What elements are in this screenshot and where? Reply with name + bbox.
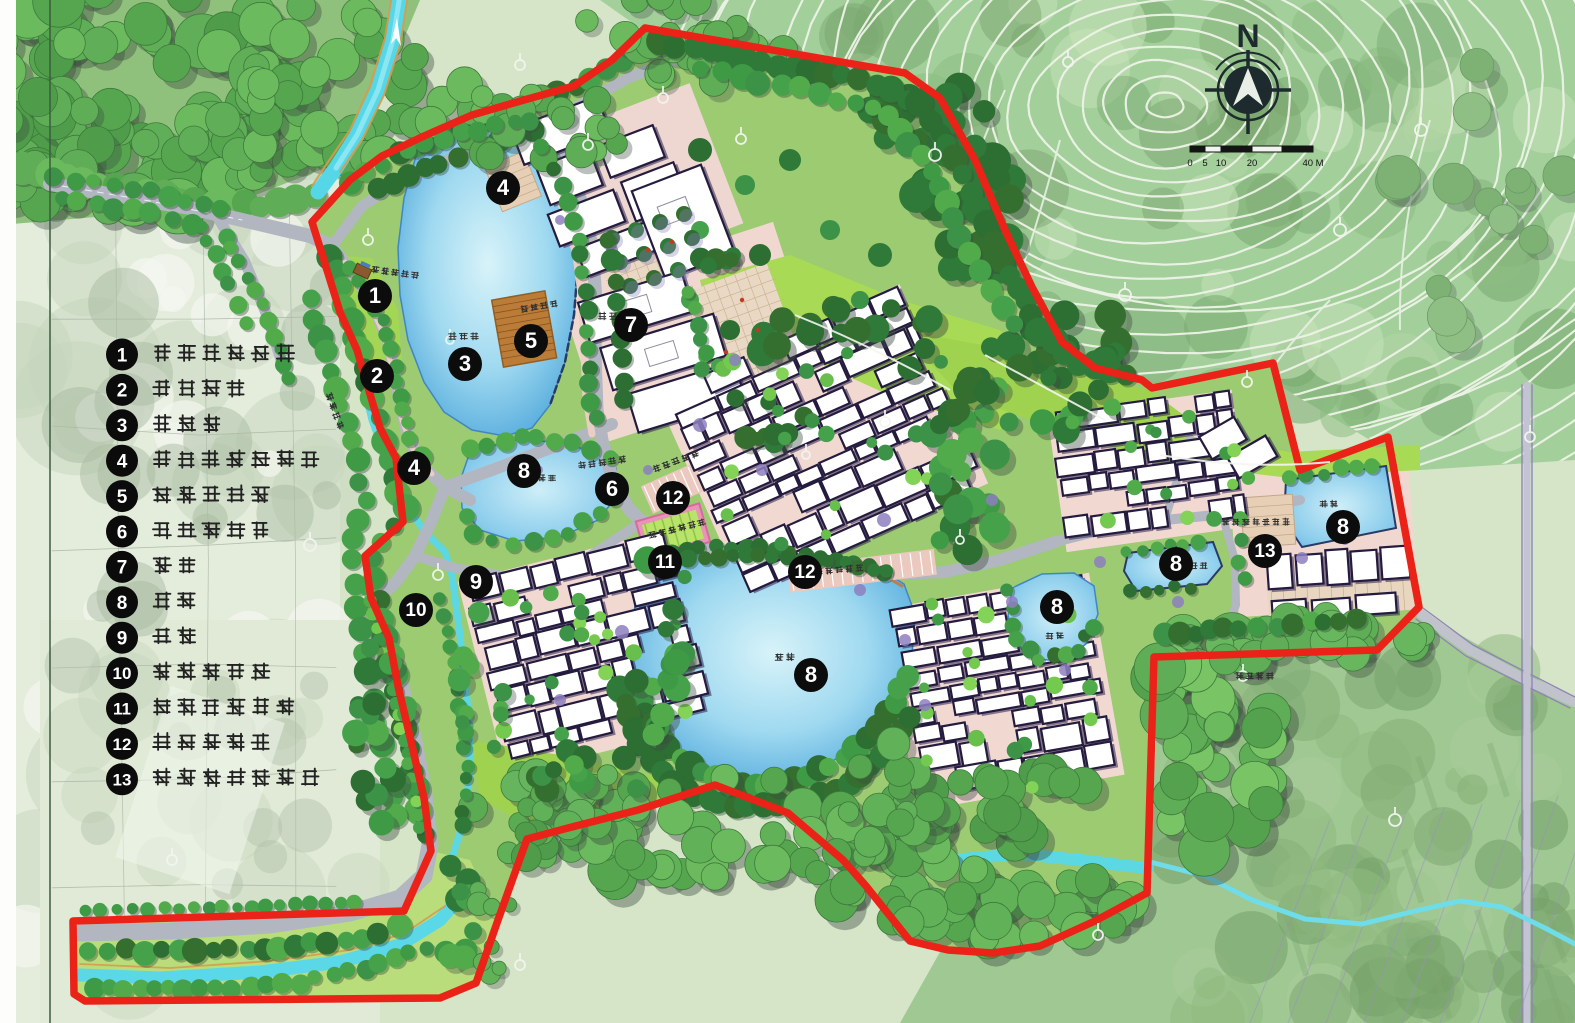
svg-text:4: 4 — [117, 452, 128, 473]
svg-text:3: 3 — [117, 416, 128, 437]
svg-text:N: N — [1236, 18, 1259, 54]
svg-text:0: 0 — [1187, 158, 1192, 169]
svg-text:12: 12 — [113, 735, 132, 754]
svg-text:10: 10 — [1216, 158, 1227, 169]
svg-text:6: 6 — [117, 522, 128, 543]
svg-text:1: 1 — [117, 345, 128, 366]
svg-text:10: 10 — [405, 600, 426, 621]
svg-text:5: 5 — [117, 487, 128, 508]
svg-text:5: 5 — [525, 328, 537, 353]
svg-text:10: 10 — [113, 664, 132, 683]
svg-text:4: 4 — [497, 175, 510, 200]
svg-text:13: 13 — [1254, 541, 1275, 562]
svg-text:8: 8 — [1051, 594, 1063, 619]
svg-text:8: 8 — [518, 458, 530, 483]
svg-text:7: 7 — [625, 312, 637, 337]
svg-text:7: 7 — [117, 558, 128, 579]
svg-text:2: 2 — [117, 381, 128, 402]
svg-text:11: 11 — [113, 700, 131, 719]
svg-text:8: 8 — [1170, 551, 1182, 576]
svg-text:20: 20 — [1247, 158, 1258, 169]
svg-text:3: 3 — [459, 351, 471, 376]
svg-text:8: 8 — [805, 662, 817, 687]
svg-text:12: 12 — [662, 488, 683, 509]
svg-text:8: 8 — [117, 593, 128, 614]
svg-text:13: 13 — [113, 770, 132, 789]
svg-text:5: 5 — [1202, 158, 1207, 169]
svg-text:11: 11 — [655, 552, 676, 573]
svg-text:8: 8 — [1337, 514, 1349, 539]
svg-text:9: 9 — [117, 629, 128, 650]
svg-text:2: 2 — [371, 363, 383, 388]
svg-text:9: 9 — [470, 569, 482, 594]
svg-text:12: 12 — [794, 562, 815, 583]
svg-text:40 M: 40 M — [1302, 158, 1323, 169]
svg-text:6: 6 — [606, 476, 618, 501]
svg-text:4: 4 — [408, 455, 421, 480]
svg-text:1: 1 — [369, 283, 381, 308]
